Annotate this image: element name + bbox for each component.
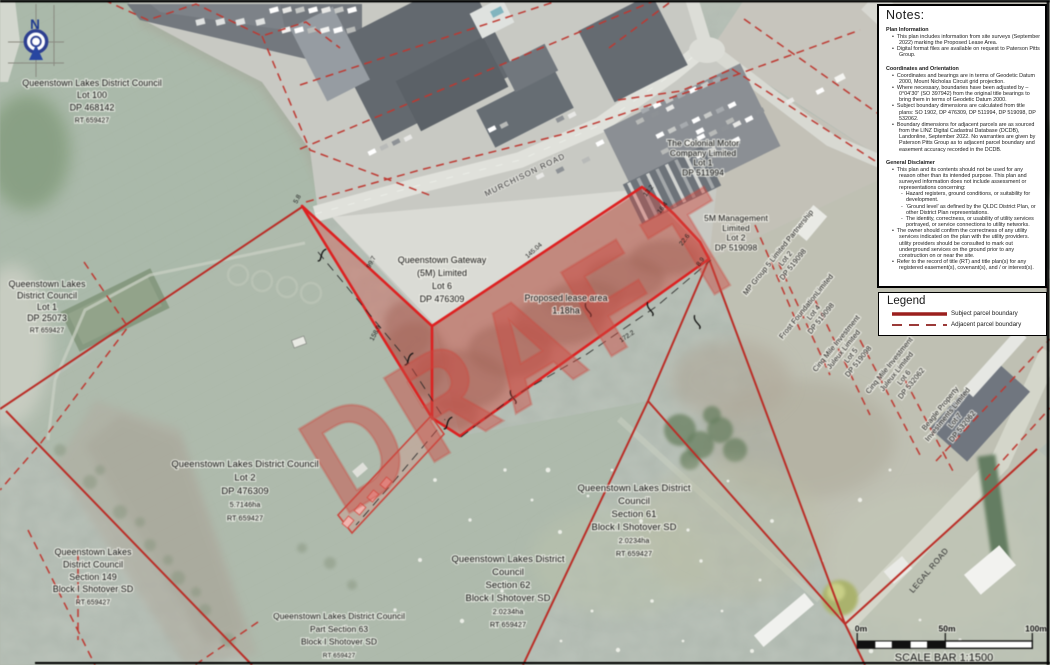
svg-text:Part Section 63: Part Section 63: [310, 624, 368, 634]
svg-text:2.0234ha: 2.0234ha: [493, 607, 525, 616]
svg-text:Queenstown Lakes District Coun: Queenstown Lakes District Council: [22, 78, 162, 88]
svg-text:RT 659427: RT 659427: [76, 600, 110, 607]
svg-text:1.18ha: 1.18ha: [552, 306, 580, 316]
svg-text:Section 61: Section 61: [612, 509, 657, 520]
svg-text:100m: 100m: [1025, 624, 1047, 634]
svg-text:Block I Shotover SD: Block I Shotover SD: [465, 593, 550, 604]
svg-text:5M Management: 5M Management: [704, 213, 768, 223]
svg-text:DP 476309: DP 476309: [221, 486, 268, 497]
svg-text:Lot 2: Lot 2: [234, 472, 255, 483]
svg-text:RT 659427: RT 659427: [616, 549, 652, 558]
svg-text:0m: 0m: [855, 624, 868, 634]
svg-text:RT 659427: RT 659427: [490, 620, 526, 629]
svg-text:RT 659427: RT 659427: [227, 514, 263, 523]
svg-text:District Council: District Council: [63, 559, 123, 569]
svg-text:(5M) Limited: (5M) Limited: [417, 268, 467, 278]
svg-text:Council: Council: [618, 496, 650, 507]
svg-text:Limited: Limited: [722, 223, 750, 233]
svg-text:Queenstown Lakes District Coun: Queenstown Lakes District Council: [171, 459, 318, 470]
svg-text:DP 468142: DP 468142: [70, 102, 115, 112]
svg-text:The Colonial Motor: The Colonial Motor: [667, 138, 739, 148]
svg-text:Queenstown Lakes District: Queenstown Lakes District: [578, 483, 691, 494]
svg-text:Queenstown Lakes: Queenstown Lakes: [8, 279, 86, 289]
svg-text:RT 659427: RT 659427: [30, 328, 64, 335]
svg-text:Council: Council: [492, 567, 524, 578]
svg-text:Section 62: Section 62: [486, 580, 531, 591]
svg-text:DP 511994: DP 511994: [682, 167, 724, 177]
svg-text:2.0234ha: 2.0234ha: [619, 536, 651, 545]
svg-text:Proposed lease area: Proposed lease area: [524, 293, 607, 303]
svg-text:Lot 1: Lot 1: [694, 158, 713, 168]
svg-text:Block I Shotover SD: Block I Shotover SD: [301, 637, 377, 647]
svg-text:50m: 50m: [938, 624, 955, 634]
svg-text:Queenstown Lakes District: Queenstown Lakes District: [452, 554, 565, 565]
svg-text:Lot 1: Lot 1: [37, 302, 57, 312]
svg-text:RT 659427: RT 659427: [323, 652, 356, 659]
svg-text:Lot 2: Lot 2: [727, 233, 746, 243]
svg-text:Queenstown Gateway: Queenstown Gateway: [398, 255, 487, 265]
svg-text:RT 659427: RT 659427: [75, 118, 109, 125]
svg-text:Block I Shotover SD: Block I Shotover SD: [591, 522, 676, 533]
svg-text:Block I Shotover SD: Block I Shotover SD: [53, 584, 134, 594]
svg-text:Queenstown Lakes District Coun: Queenstown Lakes District Council: [273, 611, 405, 621]
svg-text:District Council: District Council: [17, 290, 77, 300]
svg-text:Company Limited: Company Limited: [670, 148, 736, 158]
svg-text:Queenstown Lakes: Queenstown Lakes: [54, 547, 132, 557]
svg-text:5.7146ha: 5.7146ha: [230, 500, 262, 509]
svg-text:Lot 6: Lot 6: [432, 281, 452, 291]
svg-text:Lot 100: Lot 100: [77, 90, 107, 100]
svg-text:DP 519098: DP 519098: [715, 242, 758, 252]
svg-text:DP 25073: DP 25073: [27, 313, 67, 323]
svg-text:DP 476309: DP 476309: [420, 294, 465, 304]
svg-text:Section 149: Section 149: [69, 572, 117, 582]
